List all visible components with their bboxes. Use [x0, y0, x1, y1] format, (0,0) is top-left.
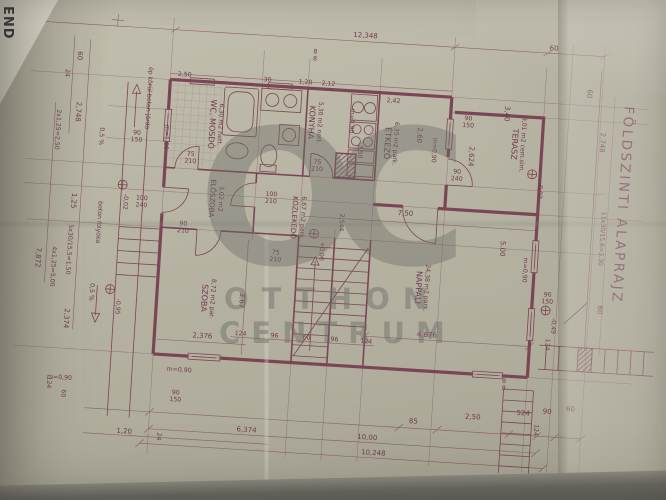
level-m095: -0,95: [114, 298, 122, 314]
dim-stair-124b: 124: [360, 338, 372, 346]
note-slope-b: 0,5 %: [87, 283, 95, 301]
dim-bath-width: 2,50: [178, 71, 192, 79]
exterior-stair-bottom: [498, 389, 533, 475]
toilet: [260, 144, 277, 167]
dim-367: 3,67: [237, 292, 246, 308]
note-sill-etkezo: m=0,90: [430, 137, 439, 162]
dim-124-br: 124: [532, 424, 540, 436]
dim-4876: 4,876: [417, 330, 438, 339]
win-150b: 150: [130, 136, 142, 144]
level-m002a: -0,02: [121, 194, 129, 210]
note-stair-right: 11x30/15,6=3,30: [597, 212, 607, 267]
dim-125: 1,25: [69, 193, 78, 209]
room-label-szoba: SZOBA: [199, 284, 210, 313]
dim-524: 524: [516, 409, 530, 418]
dim-2544: 2,544: [337, 213, 345, 231]
dim-stair-96b: 96: [330, 336, 338, 343]
dim-212: 2,12: [321, 80, 335, 88]
door-210b: 210: [311, 165, 323, 173]
dim-250-bottom: 2,50: [465, 413, 481, 422]
dim-60-top: 60: [549, 44, 558, 53]
door-210d: 210: [177, 227, 189, 235]
dim-60-bl: 60: [59, 389, 66, 397]
dim-7872: 7,872: [33, 247, 42, 268]
dim-250-konyha: 2,50: [356, 144, 364, 158]
dim-bottom-total: 10,00: [357, 433, 378, 442]
dim-wall-8b: 8: [313, 55, 317, 62]
dim-2748-right: 2,748: [598, 132, 607, 153]
door-210a: 210: [184, 157, 196, 165]
level-zero: +0,00: [317, 242, 325, 261]
note-walkway: ép körül beton járda: [143, 67, 155, 130]
win-150a: 150: [169, 396, 181, 404]
dim-bottom-120: 1,20: [116, 427, 132, 436]
dim-124-stair: 124: [543, 339, 551, 351]
dim-stair-96a: 96: [270, 332, 278, 339]
note-steps-top: 2x1,25=2,50: [53, 109, 63, 150]
note-sill-szoba: m=0,90: [166, 366, 191, 375]
level-m049: -0,49: [549, 318, 557, 334]
note-sill-konyha: m=0,90: [347, 108, 356, 133]
double-sink: [261, 88, 302, 112]
note-steps-left2: 4x1,25=5,00: [48, 246, 58, 287]
note-gutter: beton folyóka: [94, 201, 105, 244]
win-150d: 150: [541, 298, 553, 306]
dim-260: 2,60: [415, 127, 424, 143]
dim-overall-top: 12,348: [353, 31, 378, 41]
corner-fragment-text: END: [0, 6, 15, 40]
dim-30: 30: [263, 76, 271, 83]
door-240: 240: [135, 202, 147, 210]
door-210c: 210: [265, 198, 277, 206]
dim-bottom-total2: 10,248: [361, 448, 386, 458]
dim-124-bl: 124: [45, 376, 53, 388]
dim-85: 85: [409, 417, 418, 426]
washing-machine: [279, 124, 300, 145]
dim-2624: 2,624: [466, 146, 475, 167]
door-240b: 240: [451, 175, 463, 183]
dim-90-bottom: 90: [543, 408, 552, 417]
dim-2374: 2,374: [62, 308, 71, 329]
dim-24-left: 24: [63, 69, 70, 77]
dim-stair-60: 60: [302, 334, 310, 341]
note-sill-150: m=1,50: [162, 125, 171, 150]
dim-60-right: 60: [595, 305, 604, 314]
chimney: [335, 153, 356, 178]
dim-2748-left: 2,748: [74, 101, 83, 122]
dim-stair-124a: 124: [234, 330, 246, 338]
washbasin: [226, 142, 249, 159]
plan-drawing: 12,348 8 8 60 8 8 2,50 30 1,20 2,12 2,42…: [0, 0, 666, 500]
dim-242: 2,42: [386, 97, 400, 105]
note-steps-left: 5x30/15,5=1,50: [64, 224, 74, 275]
dim-wall-8d: 8: [501, 385, 505, 392]
dim-60-bottom: 60: [566, 405, 575, 414]
kitchen-fixtures: [335, 93, 378, 179]
dim-24-bottom: 24: [155, 432, 162, 440]
note-sill-nappali: m=0,90: [520, 257, 529, 282]
win-150c: 150: [462, 122, 474, 130]
level-m002b: -0,02: [536, 183, 544, 199]
dim-750: 7,50: [397, 209, 413, 218]
exterior-works: [85, 80, 170, 418]
room-label-eloszoba: ELŐSZOBA: [207, 179, 218, 218]
door-210e: 210: [269, 256, 281, 264]
floorplan-photo: 12,348 8 8 60 8 8 2,50 30 1,20 2,12 2,42…: [0, 0, 666, 500]
dim-2376: 2,376: [192, 331, 213, 340]
note-slope-a: 0,5 %: [97, 127, 105, 145]
dim-6374: 6,374: [236, 425, 257, 434]
dim-120: 1,20: [298, 79, 312, 87]
dim-60-tr: 60: [585, 89, 594, 98]
dim-500: 5,00: [498, 241, 507, 257]
dim-340: 3,40: [502, 106, 511, 122]
dim-60-left: 60: [75, 51, 84, 60]
